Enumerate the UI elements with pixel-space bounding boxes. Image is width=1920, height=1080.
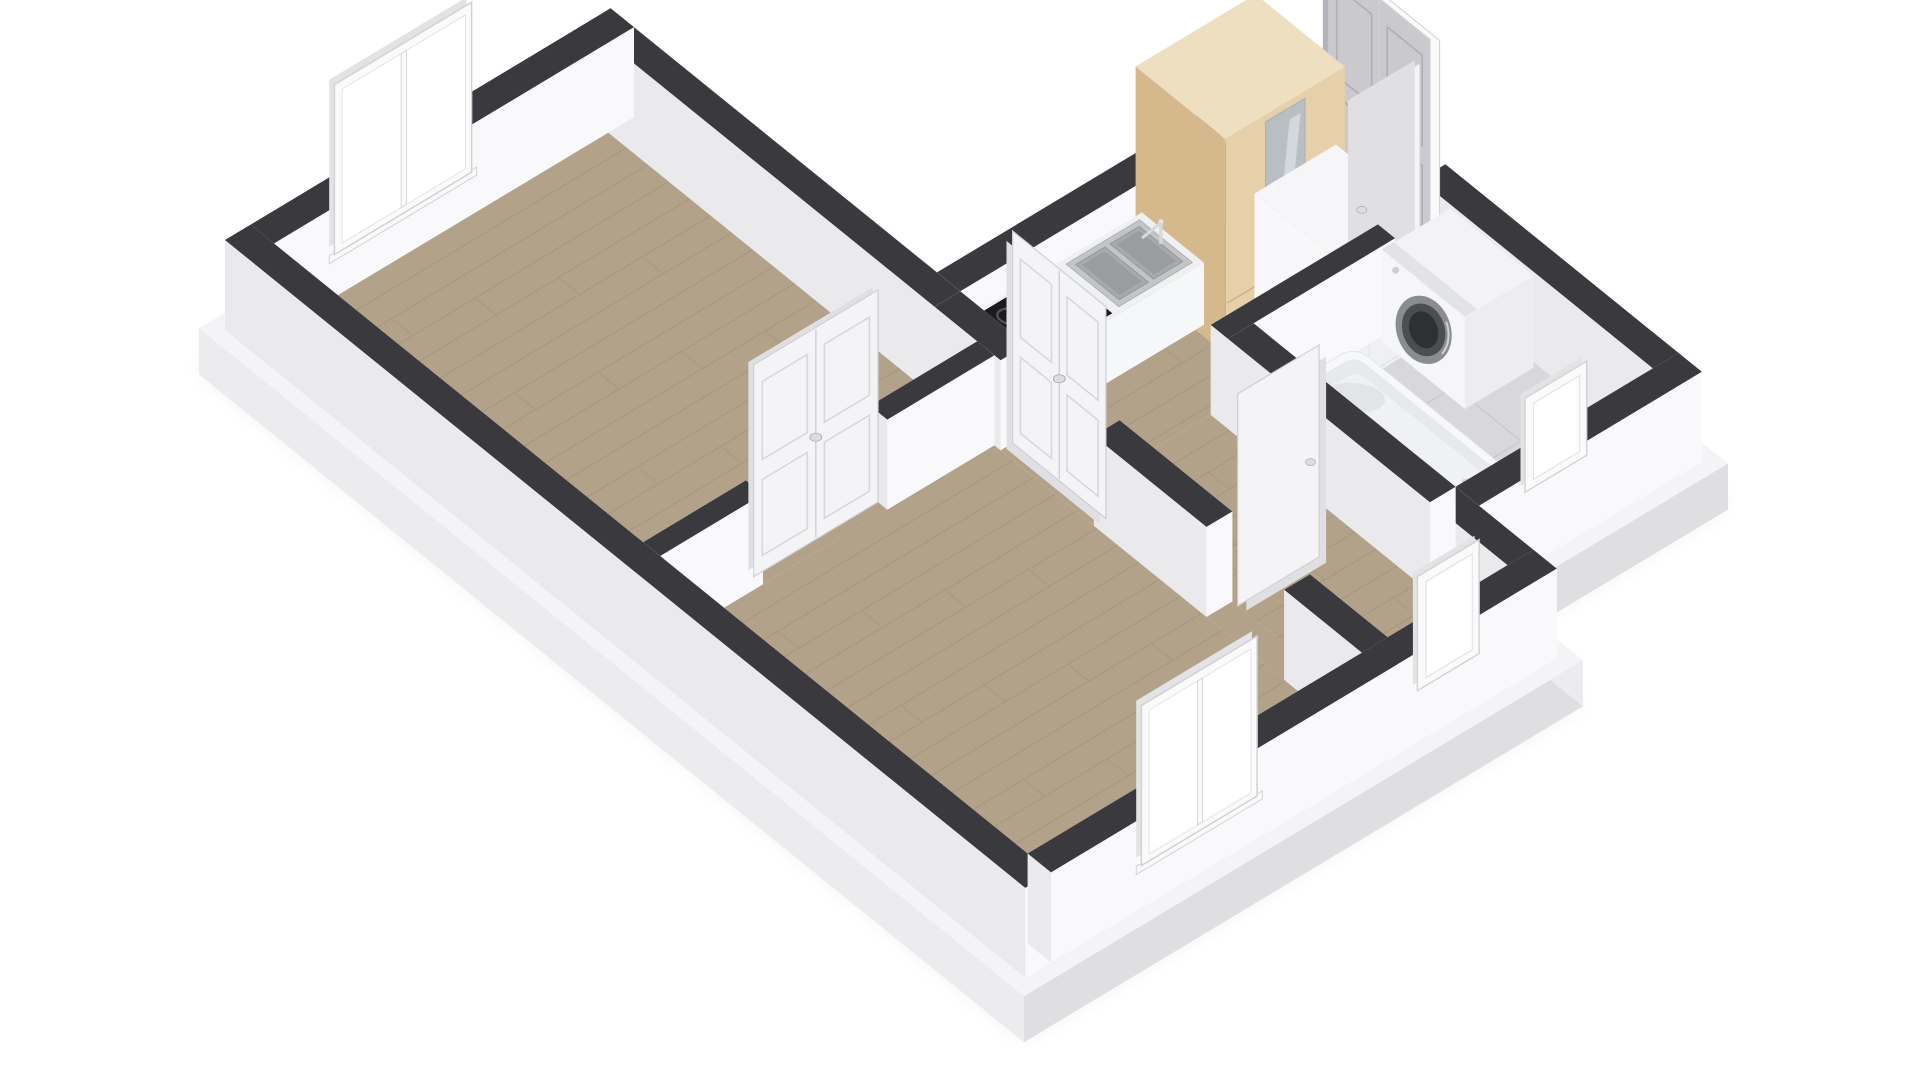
- floorplan-3d-view: [0, 0, 1920, 1080]
- floorplan-canvas: [0, 0, 1920, 1080]
